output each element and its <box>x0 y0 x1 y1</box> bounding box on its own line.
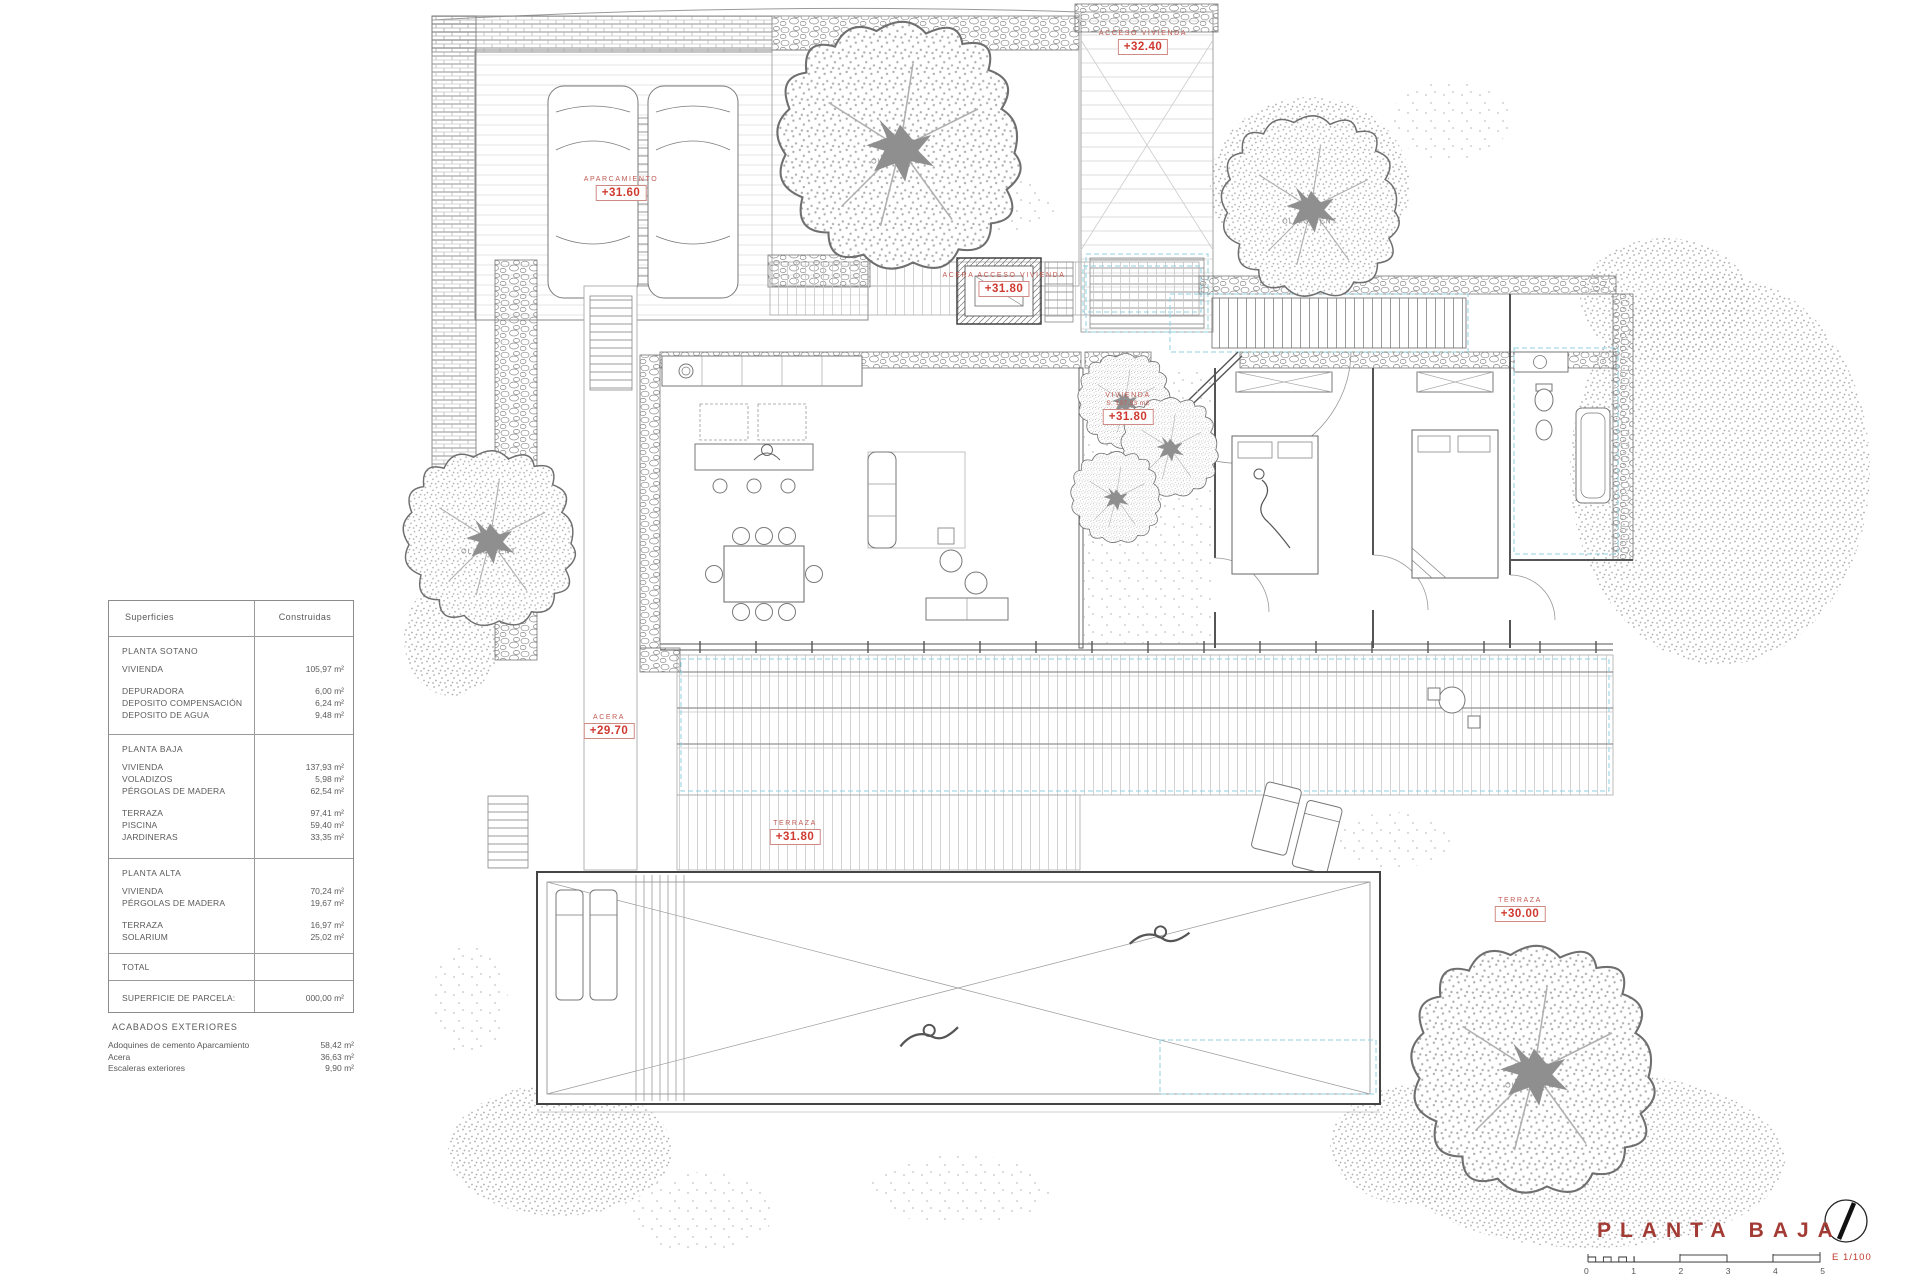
row-label: DEPOSITO DE AGUA <box>109 709 209 721</box>
level-marker-terraza-este: TERRAZA +30.00 <box>1495 897 1546 922</box>
kitchen-island <box>695 444 813 470</box>
row-value: 97,41 m² <box>264 807 353 819</box>
table-row: TERRAZA 16,97 m² <box>109 919 353 931</box>
item-value: 36,63 m² <box>320 1052 354 1064</box>
exterior-stairs <box>488 796 528 868</box>
kitchen <box>662 356 862 493</box>
item-value: 9,90 m² <box>325 1063 354 1075</box>
sheet-title: PLANTA BAJA <box>1597 1219 1842 1243</box>
marker-value: +29.70 <box>584 723 635 739</box>
dining-area <box>706 528 823 621</box>
marker-label: TERRAZA <box>1495 897 1546 904</box>
car <box>648 86 738 298</box>
parcel-value: 000,00 m² <box>264 993 353 1003</box>
marker-value: +31.80 <box>979 281 1030 297</box>
parcel-label: SUPERFICIE DE PARCELA: <box>109 993 235 1003</box>
level-marker-aparcamiento: APARCAMIENTO +31.60 <box>584 176 659 201</box>
level-marker-vivienda: VIVIENDA S: 137,93 m2 +31.80 <box>1103 392 1154 425</box>
marker-label: VIVIENDA <box>1103 392 1154 399</box>
row-label: JARDINERAS <box>109 831 178 843</box>
areas-table: Superficies Construidas PLANTA SOTANO VI… <box>108 600 354 1013</box>
header-construidas: Construidas <box>259 612 351 622</box>
section-planta-baja: PLANTA BAJA VIVIENDA 137,93 m² VOLADIZOS… <box>109 735 353 859</box>
bedroom-2 <box>1412 372 1498 578</box>
table-row: VIVIENDA 137,93 m² <box>109 761 353 773</box>
table-row: VIVIENDA 105,97 m² <box>109 663 353 675</box>
pool-steps <box>630 875 688 1101</box>
table-row: JARDINERAS 33,35 m² <box>109 831 353 843</box>
row-label: DEPURADORA <box>109 685 184 697</box>
level-marker-acera: ACERA +29.70 <box>584 714 635 739</box>
list-item: Adoquines de cemento Aparcamiento 58,42 … <box>108 1040 354 1052</box>
row-value: 105,97 m² <box>264 663 353 675</box>
table-row: SOLARIUM 25,02 m² <box>109 931 353 943</box>
tree-label: OLIVO CENT. <box>1282 219 1340 226</box>
tree-label: OLIVO CENT. <box>871 159 929 166</box>
exterior-finishes-list: ACABADOS EXTERIORES Adoquines de cemento… <box>108 1022 354 1075</box>
item-label: Acera <box>108 1052 130 1064</box>
row-label: VIVIENDA <box>109 663 163 675</box>
row-value: 19,67 m² <box>264 897 353 909</box>
row-label: PÉRGOLAS DE MADERA <box>109 785 225 797</box>
lounge-area <box>868 452 1008 620</box>
row-value: 16,97 m² <box>264 919 353 931</box>
marker-value: +32.40 <box>1118 39 1169 55</box>
table-row: DEPOSITO COMPENSACIÓN 6,24 m² <box>109 697 353 709</box>
scale-number: 4 <box>1773 1266 1778 1276</box>
row-label: TERRAZA <box>109 919 163 931</box>
marker-value: +30.00 <box>1495 906 1546 922</box>
section-title: PLANTA BAJA <box>109 744 353 754</box>
marker-label: APARCAMIENTO <box>584 176 659 183</box>
row-value: 6,00 m² <box>264 685 353 697</box>
table-header: Superficies Construidas <box>109 601 353 637</box>
marker-value: +31.60 <box>596 185 647 201</box>
tree-label: OLIVO CENT. <box>1505 1083 1563 1090</box>
table-row: VOLADIZOS 5,98 m² <box>109 773 353 785</box>
level-marker-acceso-vivienda: ACCESO VIVIENDA +32.40 <box>1099 30 1187 55</box>
table-row: PISCINA 59,40 m² <box>109 819 353 831</box>
row-label: SOLARIUM <box>109 931 168 943</box>
section-planta-sotano: PLANTA SOTANO VIVIENDA 105,97 m² DEPURAD… <box>109 637 353 735</box>
row-label: PÉRGOLAS DE MADERA <box>109 897 225 909</box>
row-label: VOLADIZOS <box>109 773 172 785</box>
bedroom-1 <box>1232 372 1332 574</box>
table-row: TERRAZA 97,41 m² <box>109 807 353 819</box>
section-planta-alta: PLANTA ALTA VIVIENDA 70,24 m² PÉRGOLAS D… <box>109 859 353 954</box>
scale-number: 1 <box>1631 1266 1636 1276</box>
row-value: 33,35 m² <box>264 831 353 843</box>
table-row: PÉRGOLAS DE MADERA 62,54 m² <box>109 785 353 797</box>
marker-label: ACERA <box>584 714 635 721</box>
table-row: DEPOSITO DE AGUA 9,48 m² <box>109 709 353 721</box>
row-value: 9,48 m² <box>264 709 353 721</box>
row-label: VIVIENDA <box>109 761 163 773</box>
scale-label: E 1/100 <box>1832 1252 1872 1263</box>
marker-label: ACERA ACCESO VIVIENDA <box>942 272 1065 279</box>
row-label: PISCINA <box>109 819 157 831</box>
marker-value: +31.80 <box>1103 409 1154 425</box>
scale-number: 3 <box>1726 1266 1731 1276</box>
marker-label: TERRAZA <box>770 820 821 827</box>
row-value: 6,24 m² <box>264 697 353 709</box>
row-value: 62,54 m² <box>264 785 353 797</box>
exterior-finishes-title: ACABADOS EXTERIORES <box>108 1022 354 1032</box>
scale-bar-numbers: 0 1 2 3 4 5 <box>1584 1266 1825 1276</box>
level-marker-terraza: TERRAZA +31.80 <box>770 820 821 845</box>
table-row: DEPURADORA 6,00 m² <box>109 685 353 697</box>
table-row: PÉRGOLAS DE MADERA 19,67 m² <box>109 897 353 909</box>
scale-number: 0 <box>1584 1266 1589 1276</box>
item-label: Adoquines de cemento Aparcamiento <box>108 1040 249 1052</box>
row-value: 25,02 m² <box>264 931 353 943</box>
total-label: TOTAL <box>109 962 150 972</box>
item-label: Escaleras exteriores <box>108 1063 185 1075</box>
marker-area-sublabel: S: 137,93 m2 <box>1103 400 1154 407</box>
scale-bar <box>1588 1252 1820 1262</box>
tree-label: OLIVO CENT. <box>461 549 519 556</box>
scale-number: 5 <box>1820 1266 1825 1276</box>
pool <box>537 872 1380 1112</box>
row-label: DEPOSITO COMPENSACIÓN <box>109 697 242 709</box>
level-marker-acera-acceso: ACERA ACCESO VIVIENDA +31.80 <box>942 272 1065 297</box>
marker-value: +31.80 <box>770 829 821 845</box>
item-value: 58,42 m² <box>320 1040 354 1052</box>
main-stairs <box>1170 294 1468 352</box>
row-label: TERRAZA <box>109 807 163 819</box>
section-title: PLANTA SOTANO <box>109 646 353 656</box>
table-row: VIVIENDA 70,24 m² <box>109 885 353 897</box>
marker-label: ACCESO VIVIENDA <box>1099 30 1187 37</box>
row-value: 59,40 m² <box>264 819 353 831</box>
header-superficies: Superficies <box>125 612 174 622</box>
list-item: Acera 36,63 m² <box>108 1052 354 1064</box>
row-value: 70,24 m² <box>264 885 353 897</box>
list-item: Escaleras exteriores 9,90 m² <box>108 1063 354 1075</box>
parcel-row: SUPERFICIE DE PARCELA: 000,00 m² <box>109 981 353 1015</box>
floor-plan-sheet: APARCAMIENTO +31.60 ACCESO VIVIENDA +32.… <box>0 0 1920 1280</box>
section-title: PLANTA ALTA <box>109 868 353 878</box>
bidet <box>1536 420 1552 440</box>
row-label: VIVIENDA <box>109 885 163 897</box>
row-value: 5,98 m² <box>264 773 353 785</box>
total-row: TOTAL <box>109 954 353 981</box>
scale-number: 2 <box>1679 1266 1684 1276</box>
row-value: 137,93 m² <box>264 761 353 773</box>
